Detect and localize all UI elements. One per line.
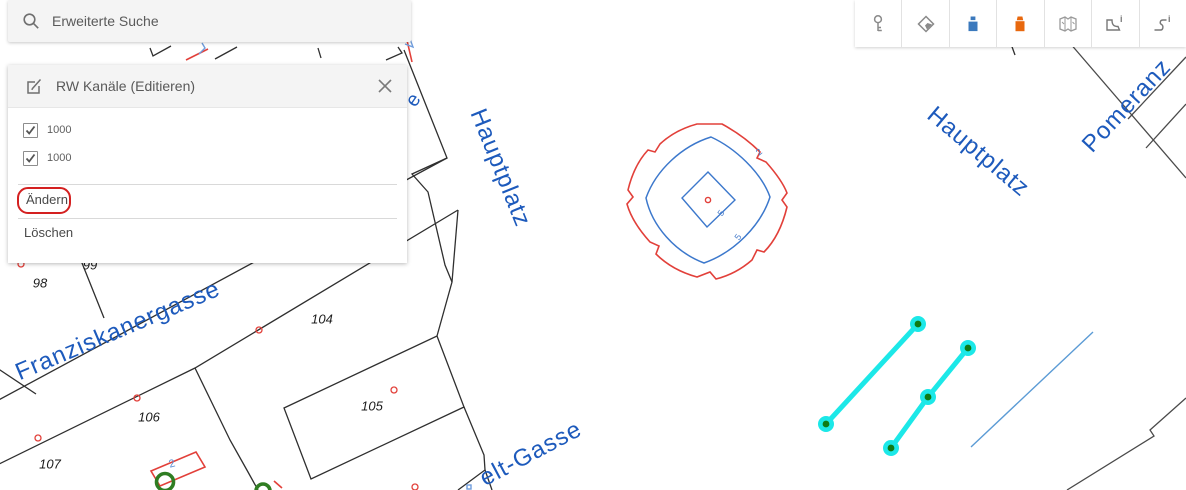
advanced-search-bar[interactable]: Erweiterte Suche — [8, 0, 411, 42]
basemap-icon — [915, 13, 937, 35]
parcel-label-104: 104 — [311, 312, 333, 327]
edit-feature-panel: RW Kanäle (Editieren) 1000 1000 — [8, 65, 407, 263]
blue-symbol-icon — [962, 13, 984, 35]
parcel-label-107: 107 — [39, 457, 61, 472]
edit-panel-title: RW Kanäle (Editieren) — [56, 78, 195, 94]
gis-application-window: Hauptplatz Hauptplatz Pomeranz Franziska… — [0, 0, 1186, 490]
edit-panel-header: RW Kanäle (Editieren) — [8, 65, 407, 108]
blue-channel-line — [971, 332, 1093, 447]
toolbar-button-basemap[interactable] — [901, 0, 948, 47]
search-icon — [22, 12, 40, 30]
vertex-markers — [818, 316, 976, 456]
aendern-action[interactable]: Ändern — [26, 192, 68, 207]
search-placeholder: Erweiterte Suche — [52, 13, 159, 29]
feature-row-1: 1000 — [23, 120, 71, 140]
toolbar-button-polygon-info[interactable]: i — [1091, 0, 1138, 47]
parcel-label-105: 105 — [361, 399, 383, 414]
feature-checkbox-label: 1000 — [47, 124, 71, 136]
feature-checkbox-2[interactable] — [23, 151, 38, 166]
svg-text:i: i — [1168, 14, 1171, 24]
toolbar-button-symbol-orange[interactable] — [996, 0, 1043, 47]
check-icon — [25, 153, 36, 164]
line-info-icon: i — [1151, 13, 1175, 35]
edit-icon — [25, 77, 44, 96]
check-icon — [25, 125, 36, 136]
svg-text:i: i — [1120, 14, 1123, 24]
map-toolbar: i i — [855, 0, 1186, 47]
toolbar-button-symbol-blue[interactable] — [949, 0, 996, 47]
legend-map-icon — [1057, 13, 1079, 35]
feature-row-2: 1000 — [23, 148, 71, 168]
selected-channel-lines[interactable] — [818, 316, 976, 456]
loeschen-action[interactable]: Löschen — [24, 225, 73, 240]
key-icon — [867, 13, 889, 35]
close-icon[interactable] — [375, 76, 395, 96]
panel-divider — [18, 218, 397, 219]
contour-rings — [627, 124, 787, 279]
parcel-label-106: 106 — [138, 410, 160, 425]
toolbar-button-line-info[interactable]: i — [1139, 0, 1186, 47]
feature-checkbox-label: 1000 — [47, 152, 71, 164]
panel-divider — [18, 184, 397, 185]
toolbar-button-legend-map[interactable] — [1044, 0, 1091, 47]
toolbar-button-key[interactable] — [855, 0, 901, 47]
parcel-label-98: 98 — [33, 276, 47, 291]
feature-checkbox-1[interactable] — [23, 123, 38, 138]
polygon-info-icon: i — [1103, 13, 1127, 35]
orange-symbol-icon — [1009, 13, 1031, 35]
